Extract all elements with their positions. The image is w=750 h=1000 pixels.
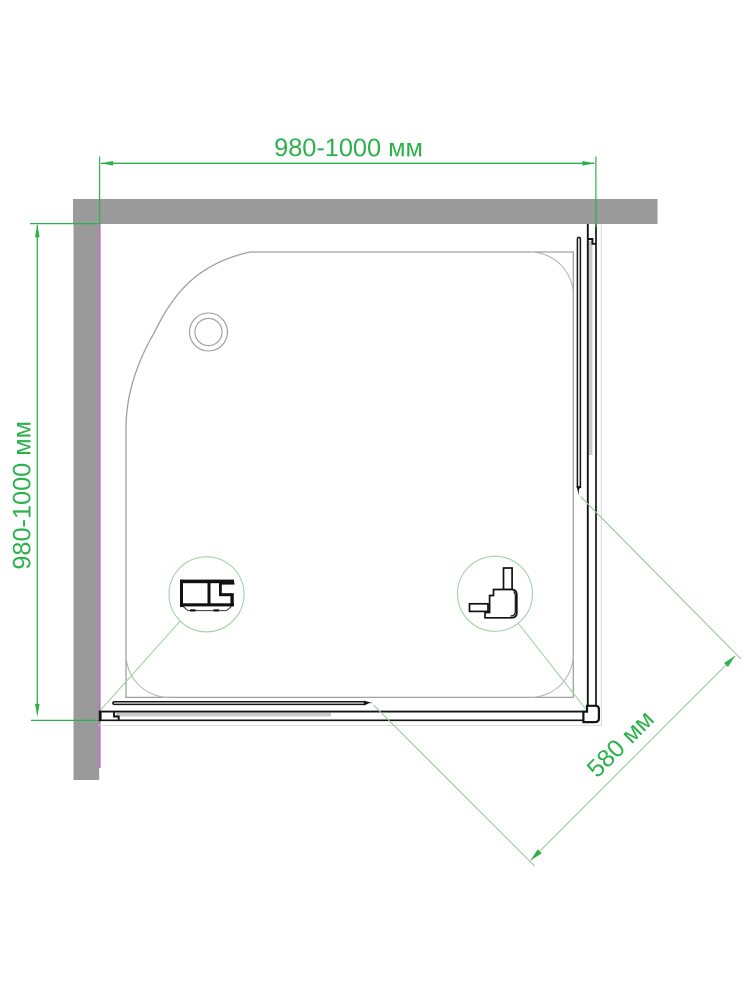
svg-text:980-1000 мм: 980-1000 мм bbox=[274, 134, 423, 162]
svg-text:980-1000 мм: 980-1000 мм bbox=[9, 421, 37, 570]
